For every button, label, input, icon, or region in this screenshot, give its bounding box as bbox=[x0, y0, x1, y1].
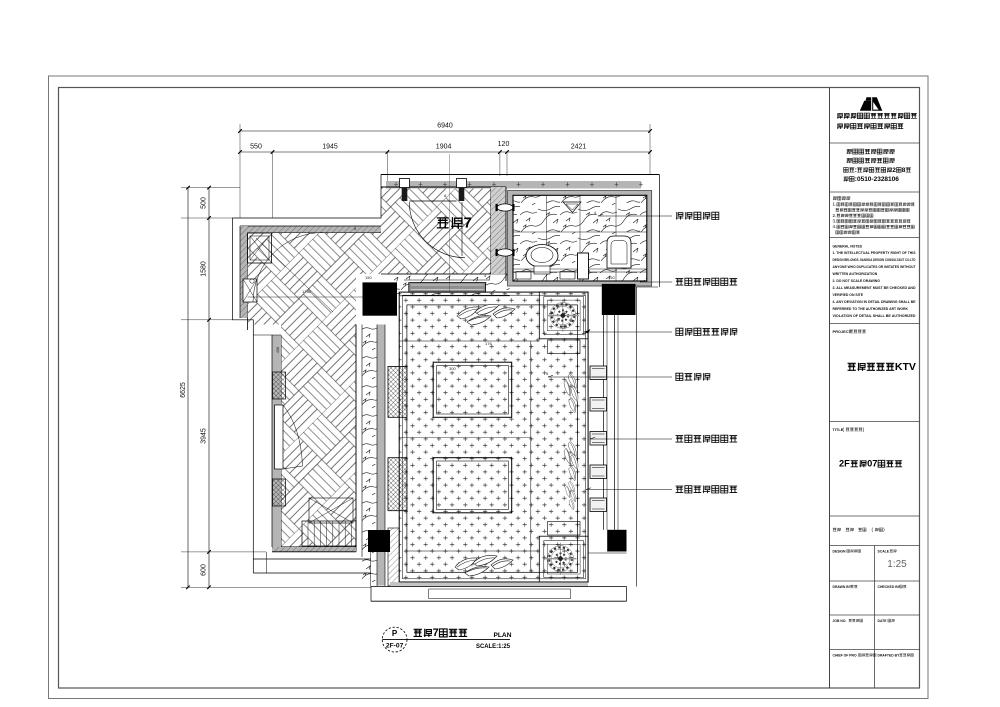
svg-text:3945: 3945 bbox=[201, 428, 208, 444]
svg-text:P: P bbox=[392, 629, 398, 638]
svg-text:1.: 1. bbox=[833, 202, 837, 207]
svg-text:DRAFTED BY: DRAFTED BY bbox=[878, 654, 901, 658]
svg-text:2. DO NOT SCALE DRAWING: 2. DO NOT SCALE DRAWING bbox=[833, 279, 881, 283]
svg-text:150: 150 bbox=[365, 275, 372, 280]
svg-text:1904: 1904 bbox=[436, 144, 452, 151]
svg-text:PROJECT: PROJECT bbox=[833, 329, 852, 334]
svg-text:300: 300 bbox=[449, 366, 456, 371]
svg-text:1780: 1780 bbox=[302, 289, 312, 294]
svg-text:SCALE:1:25: SCALE:1:25 bbox=[476, 643, 511, 650]
svg-text:2F-07: 2F-07 bbox=[386, 643, 404, 650]
svg-text:DESIGN: DESIGN bbox=[833, 550, 847, 554]
svg-text:6940: 6940 bbox=[437, 123, 453, 130]
svg-text:CHIEF OF PRO: CHIEF OF PRO bbox=[833, 654, 857, 658]
svg-text:4.: 4. bbox=[833, 224, 837, 229]
svg-text::: : bbox=[855, 167, 857, 174]
svg-text:WRITTEN AUTHORIZATION: WRITTEN AUTHORIZATION bbox=[833, 272, 878, 276]
svg-text:2.: 2. bbox=[833, 213, 837, 218]
svg-text:1945: 1945 bbox=[322, 144, 338, 151]
svg-text:600: 600 bbox=[201, 564, 208, 576]
svg-text:2F: 2F bbox=[839, 459, 850, 469]
svg-text:1580: 1580 bbox=[201, 261, 208, 277]
svg-text:SCALE: SCALE bbox=[878, 550, 890, 554]
svg-text:PLAN: PLAN bbox=[494, 632, 512, 639]
svg-text:3.: 3. bbox=[833, 219, 837, 224]
svg-text:DRAWN BY: DRAWN BY bbox=[833, 585, 852, 589]
svg-text:07: 07 bbox=[867, 459, 877, 469]
svg-text::0510-2328106: :0510-2328106 bbox=[855, 176, 899, 183]
svg-text:176: 176 bbox=[485, 341, 492, 346]
svg-text:458: 458 bbox=[276, 347, 280, 353]
svg-text:7: 7 bbox=[433, 627, 439, 639]
svg-text:2421: 2421 bbox=[571, 144, 587, 151]
svg-text:500: 500 bbox=[201, 197, 208, 209]
svg-text:7: 7 bbox=[464, 214, 472, 231]
svg-text:150: 150 bbox=[608, 275, 615, 280]
svg-text:KTV: KTV bbox=[895, 361, 916, 373]
svg-text:GENERAL NOTES: GENERAL NOTES bbox=[833, 245, 863, 249]
svg-text:REFERRED TO THE AUTHORIZED AR: REFERRED TO THE AUTHORIZED ART WORK bbox=[833, 307, 909, 311]
svg-text:VERIFIED ON SITE: VERIFIED ON SITE bbox=[833, 293, 864, 297]
svg-text:550: 550 bbox=[250, 144, 262, 151]
svg-text:8: 8 bbox=[902, 167, 906, 174]
svg-text:120: 120 bbox=[498, 141, 510, 148]
svg-text:CHECKED BY: CHECKED BY bbox=[878, 585, 901, 589]
svg-text:3. ALL MEASUREMENT MUST BE: 3. ALL MEASUREMENT MUST BE CHECKED AND bbox=[833, 286, 917, 290]
svg-text:ANYONE WHO DUPLICATES OR IMITA: ANYONE WHO DUPLICATES OR IMITATES WITHOU… bbox=[833, 265, 917, 269]
svg-text:DESIGN BELONGS JIANGDA DESIGN: DESIGN BELONGS JIANGDA DESIGN CONSULTANT… bbox=[833, 258, 916, 262]
svg-text:1:25: 1:25 bbox=[887, 559, 907, 570]
svg-text:1. THE INTELLECTUAL PROPERTY: 1. THE INTELLECTUAL PROPERTY RIGHT OF TH… bbox=[833, 251, 917, 255]
svg-text:VIOLATION OF DETAIL SHALL BE A: VIOLATION OF DETAIL SHALL BE AUTHORIZED bbox=[833, 314, 917, 318]
svg-text:4. ANY DEVIATION IN DETAIL DRA: 4. ANY DEVIATION IN DETAIL DRAWING SHALL… bbox=[833, 300, 917, 304]
svg-text:6625: 6625 bbox=[180, 382, 187, 398]
svg-text:JOB NO.: JOB NO. bbox=[833, 619, 847, 623]
svg-text:2: 2 bbox=[892, 167, 896, 174]
svg-text:DATE: DATE bbox=[878, 619, 888, 623]
